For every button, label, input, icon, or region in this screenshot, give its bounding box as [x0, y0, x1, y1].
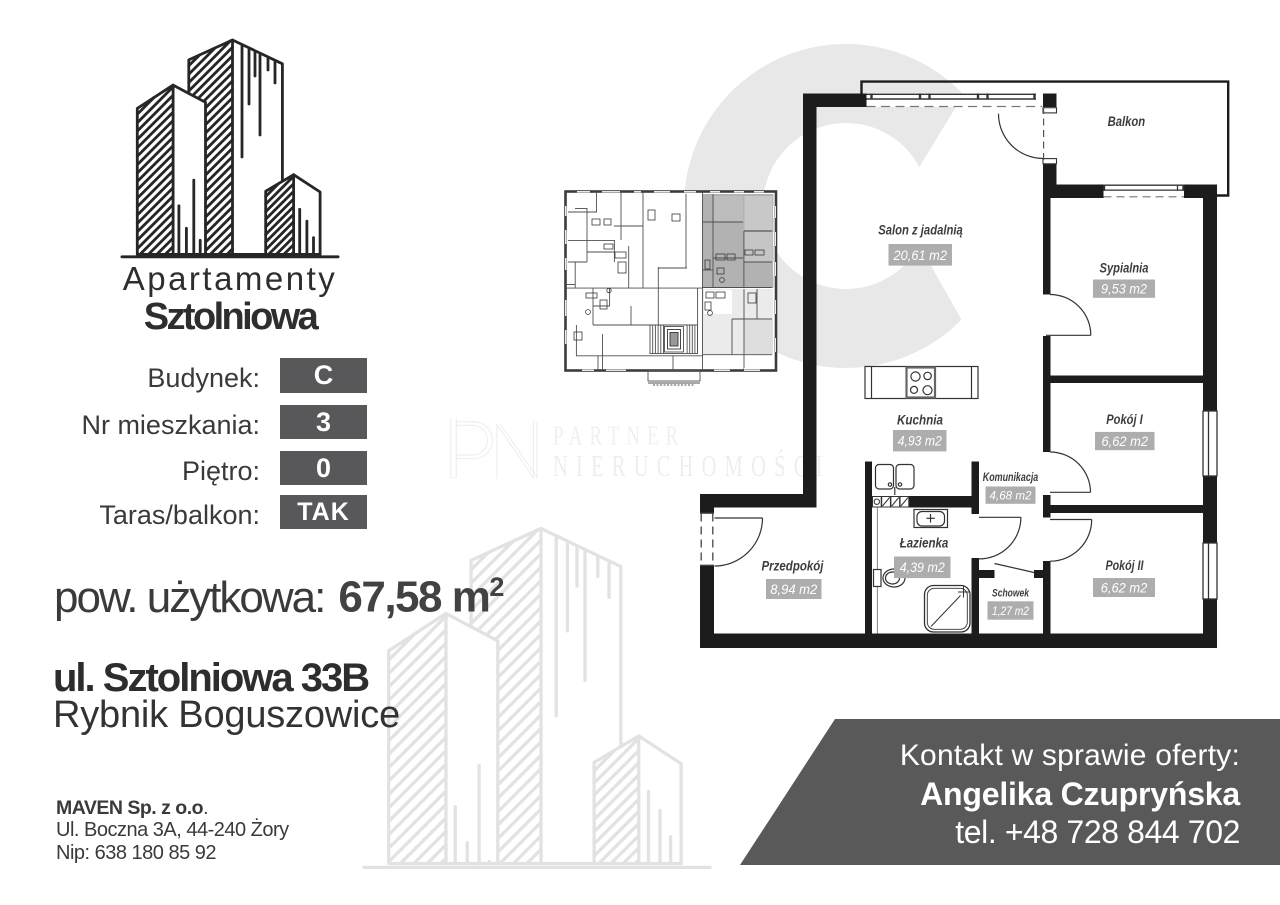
svg-text:Kuchnia: Kuchnia: [897, 412, 943, 428]
svg-text:6,62 m2: 6,62 m2: [1102, 434, 1149, 449]
svg-text:4,93 m2: 4,93 m2: [898, 434, 942, 449]
svg-text:Pokój I: Pokój I: [1106, 412, 1143, 427]
svg-text:6,62 m2: 6,62 m2: [1101, 580, 1148, 595]
svg-text:Schowek: Schowek: [992, 588, 1030, 600]
svg-text:Przedpokój: Przedpokój: [762, 559, 824, 574]
svg-text:4,68 m2: 4,68 m2: [990, 488, 1032, 502]
svg-text:Salon z jadalnią: Salon z jadalnią: [878, 222, 963, 238]
svg-text:Pokój II: Pokój II: [1106, 558, 1144, 573]
svg-text:Łazienka: Łazienka: [899, 536, 949, 551]
svg-text:8,94 m2: 8,94 m2: [770, 582, 817, 597]
svg-text:Sypialnia: Sypialnia: [1100, 261, 1149, 276]
svg-text:1,27 m2: 1,27 m2: [992, 604, 1029, 618]
svg-text:Komunikacja: Komunikacja: [983, 472, 1039, 484]
svg-text:4,39 m2: 4,39 m2: [900, 560, 945, 575]
svg-text:20,61 m2: 20,61 m2: [893, 247, 948, 263]
svg-text:9,53 m2: 9,53 m2: [1101, 282, 1147, 297]
svg-text:Balkon: Balkon: [1108, 114, 1146, 129]
